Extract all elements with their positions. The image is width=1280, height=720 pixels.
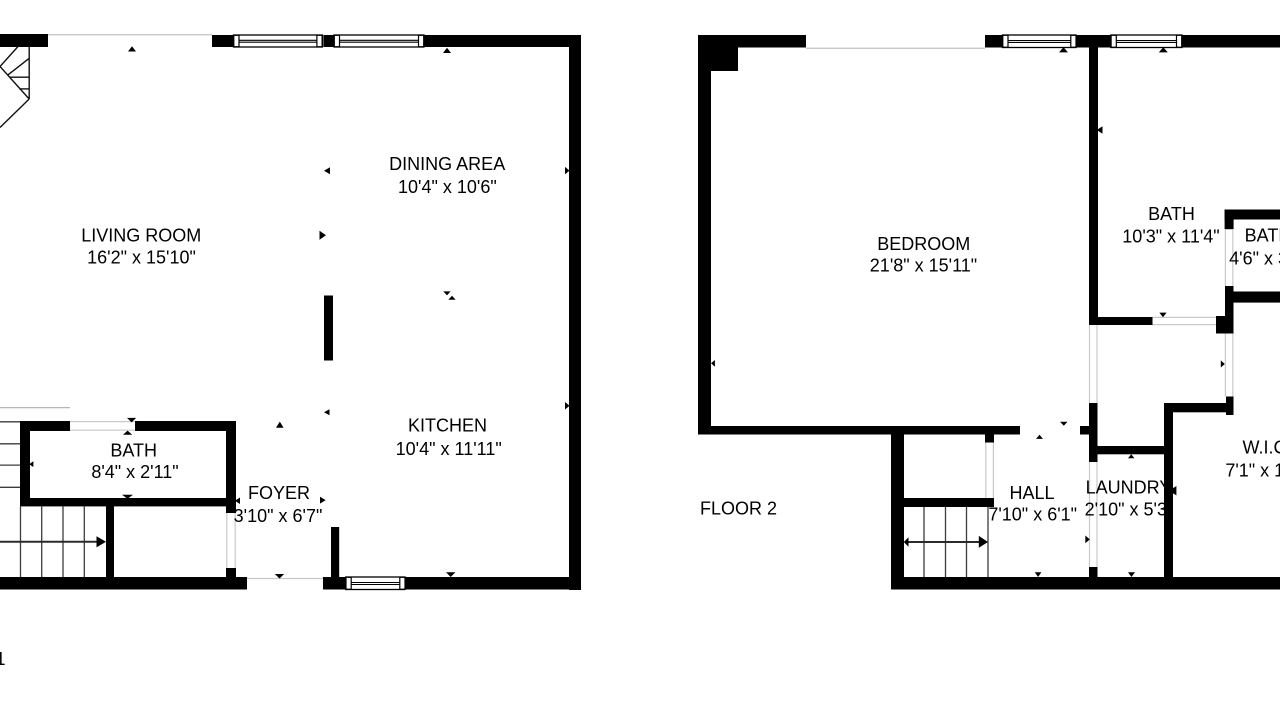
- svg-text:BATH: BATH: [1148, 204, 1195, 224]
- svg-text:BATH: BATH: [1245, 226, 1280, 246]
- svg-text:KITCHEN: KITCHEN: [408, 415, 487, 435]
- svg-text:BEDROOM: BEDROOM: [877, 234, 970, 254]
- svg-text:21'8" x 15'11": 21'8" x 15'11": [870, 256, 977, 276]
- svg-text:W.I.C.: W.I.C.: [1243, 438, 1280, 458]
- svg-text:2'10" x 5'3": 2'10" x 5'3": [1085, 500, 1174, 520]
- svg-text:FLOOR 1: FLOOR 1: [0, 649, 6, 669]
- svg-text:7'10" x 6'1": 7'10" x 6'1": [988, 505, 1077, 525]
- svg-text:DINING AREA: DINING AREA: [389, 154, 505, 174]
- svg-text:10'4" x 10'6": 10'4" x 10'6": [398, 177, 497, 197]
- svg-text:FLOOR 2: FLOOR 2: [700, 498, 777, 518]
- svg-text:BATH: BATH: [110, 440, 157, 460]
- svg-text:4'6" x 3'8": 4'6" x 3'8": [1229, 248, 1280, 268]
- svg-text:10'4" x 11'11": 10'4" x 11'11": [396, 439, 502, 459]
- svg-text:LIVING ROOM: LIVING ROOM: [81, 226, 201, 246]
- svg-text:10'3" x 11'4": 10'3" x 11'4": [1122, 227, 1219, 247]
- svg-text:FOYER: FOYER: [248, 483, 310, 503]
- svg-text:LAUNDRY: LAUNDRY: [1086, 478, 1172, 498]
- svg-text:7'1" x 11'2": 7'1" x 11'2": [1225, 460, 1280, 480]
- svg-text:8'4" x 2'11": 8'4" x 2'11": [91, 462, 178, 482]
- svg-text:16'2" x 15'10": 16'2" x 15'10": [87, 247, 196, 267]
- svg-text:3'10" x 6'7": 3'10" x 6'7": [234, 506, 323, 526]
- svg-text:HALL: HALL: [1009, 483, 1054, 503]
